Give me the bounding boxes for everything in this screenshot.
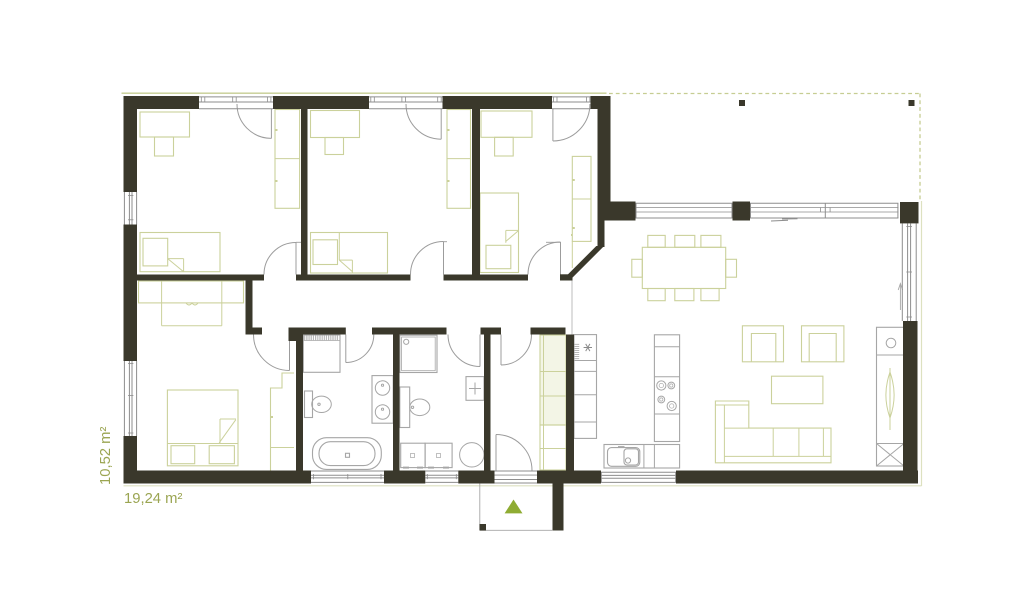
svg-text:19,24 m²: 19,24 m²	[124, 491, 182, 507]
svg-text:10,52 m²: 10,52 m²	[98, 427, 114, 485]
